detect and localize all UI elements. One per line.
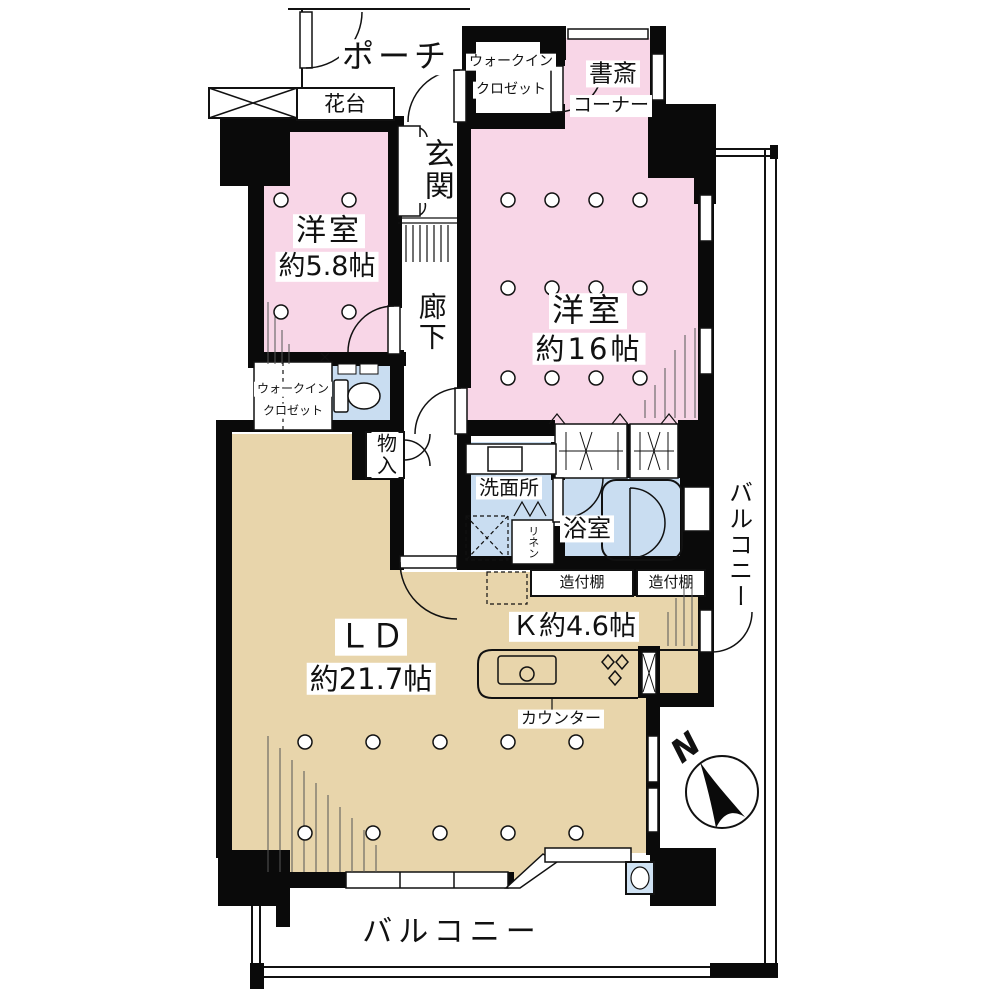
living-label-2: 約21.7帖 <box>307 663 436 695</box>
balcony-door <box>712 612 752 652</box>
front-door <box>408 70 466 122</box>
balcony-right-label: バルコニー <box>722 479 753 611</box>
wic-left-label-2: クロゼット <box>260 404 326 419</box>
storage-doors <box>404 434 430 466</box>
bedroom58-label-1: 洋室 <box>293 214 365 248</box>
shelf-left-label: 造付棚 <box>556 574 607 592</box>
floorplan: ポーチ 花台 ウォークイン クロゼット 書斎 コーナー 玄関 洋室 約5.8帖 … <box>0 0 1000 1000</box>
living-label-1: ＬＤ <box>335 619 407 656</box>
corridor-label: 廊下 <box>413 291 448 353</box>
balcony-drain-icon <box>626 862 654 894</box>
bedroom16-door <box>415 388 467 434</box>
washbasin-icon <box>466 444 556 474</box>
washroom-label: 洗面所 <box>476 477 542 500</box>
compass-icon <box>686 756 758 828</box>
floorplan-drawing <box>0 0 1000 1000</box>
shelf-right-label: 造付棚 <box>645 574 696 592</box>
study-label-2: コーナー <box>570 95 652 117</box>
kitchen-label: Ｋ約4.6帖 <box>509 612 639 642</box>
wic-left-label-1: ウォークイン <box>254 382 332 397</box>
bathroom-label: 浴室 <box>560 515 614 542</box>
wic-top-label-2: クロゼット <box>473 82 549 99</box>
study-label-1: 書斎 <box>586 60 640 87</box>
flower-stand-label: 花台 <box>321 92 369 116</box>
entrance-step-hatch <box>398 218 457 262</box>
wic-top-label-1: ウォークイン <box>466 54 556 71</box>
closet-icons <box>549 414 678 478</box>
linen-label: リネン <box>524 525 542 560</box>
storage-label: 物入 <box>372 432 399 478</box>
balcony-bottom-label: バルコニー <box>359 915 544 949</box>
entrance-label: 玄関 <box>417 137 455 203</box>
counter-label: カウンター <box>518 710 604 729</box>
flower-bed-icon <box>209 88 297 118</box>
porch-label: ポーチ <box>339 39 453 75</box>
bedroom16-label-2: 約16帖 <box>533 333 646 365</box>
bedroom58-label-2: 約5.8帖 <box>276 252 379 282</box>
bedroom16-label-1: 洋室 <box>549 293 627 329</box>
